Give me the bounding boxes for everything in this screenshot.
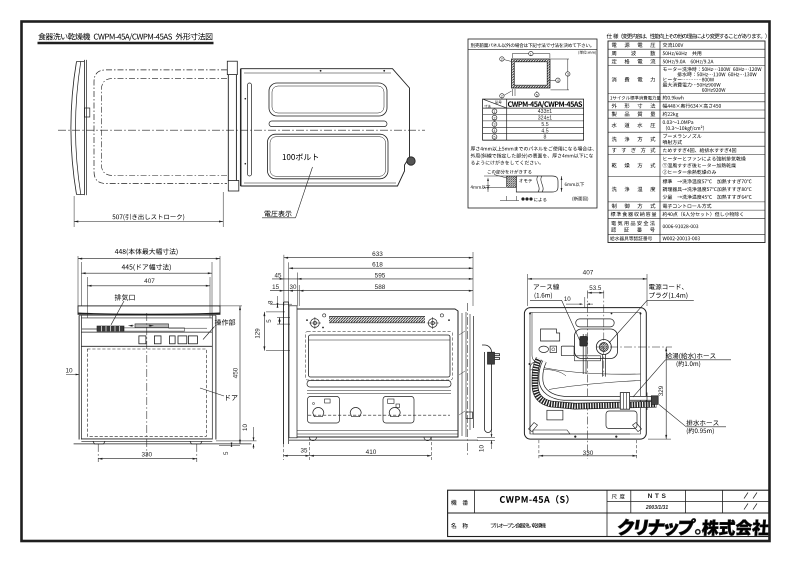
svg-text:2003/1/31: 2003/1/31 (645, 505, 668, 511)
svg-text:588: 588 (375, 284, 386, 291)
svg-text:329: 329 (658, 385, 665, 396)
svg-text:4.5: 4.5 (541, 128, 548, 134)
svg-text:1: 1 (494, 110, 496, 114)
svg-text:433±1: 433±1 (538, 109, 553, 115)
svg-text:5: 5 (266, 319, 273, 323)
svg-text:4: 4 (494, 129, 496, 133)
svg-text:5: 5 (223, 451, 230, 455)
svg-text:595: 595 (375, 272, 386, 279)
svg-text:53.5: 53.5 (589, 285, 602, 292)
svg-text:5: 5 (536, 93, 538, 97)
svg-text:4: 4 (557, 79, 559, 83)
svg-text:8: 8 (267, 300, 274, 304)
svg-text:407: 407 (583, 270, 594, 277)
svg-text:30: 30 (290, 284, 297, 291)
svg-text:2: 2 (501, 95, 503, 99)
svg-text:NTS: NTS (648, 493, 669, 500)
svg-text:35: 35 (301, 448, 308, 455)
svg-text:450: 450 (233, 367, 240, 378)
svg-text:1: 1 (530, 52, 532, 56)
svg-text:10: 10 (479, 445, 486, 452)
svg-text:410: 410 (366, 449, 377, 456)
svg-text:10: 10 (242, 424, 249, 431)
svg-text:324±1: 324±1 (538, 116, 553, 122)
svg-text:5.5: 5.5 (541, 122, 548, 128)
svg-text:3: 3 (494, 123, 496, 127)
svg-text:407: 407 (144, 278, 155, 285)
svg-text:330: 330 (141, 452, 152, 459)
svg-text:2: 2 (501, 58, 503, 62)
svg-text:8: 8 (544, 135, 547, 141)
svg-text:15: 15 (272, 284, 279, 291)
svg-text:129: 129 (255, 328, 262, 339)
svg-text:10: 10 (65, 367, 73, 374)
svg-text:618: 618 (372, 262, 383, 269)
svg-text:10: 10 (564, 296, 571, 303)
svg-text:5: 5 (494, 136, 496, 140)
svg-text:3: 3 (567, 73, 569, 77)
svg-text:633: 633 (372, 251, 383, 258)
svg-text:2: 2 (494, 116, 496, 120)
